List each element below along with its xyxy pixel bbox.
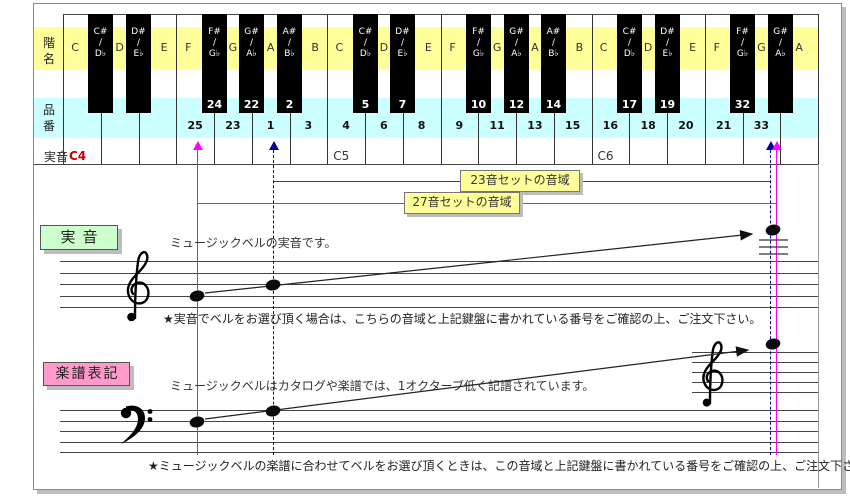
black-key-label: / — [239, 38, 264, 49]
black-key-label: / — [730, 38, 755, 49]
key-guide-line — [770, 150, 771, 455]
notation-bass-staff-line — [60, 442, 818, 443]
black-key: F#/G♭10 — [466, 14, 491, 113]
notation-bass-staff-line — [60, 452, 818, 453]
range-label-27-set: 27音セットの音域 — [404, 192, 520, 214]
black-key: D#/E♭7 — [390, 14, 415, 113]
black-key-number: 19 — [655, 99, 680, 111]
black-key-label: / — [353, 38, 378, 49]
black-key-label: / — [88, 38, 113, 49]
black-key-label: G# — [768, 27, 793, 38]
white-key-number: 11 — [480, 119, 514, 132]
black-key-label: A# — [541, 27, 566, 38]
right-edge-line — [818, 164, 819, 488]
black-key-label: G♭ — [466, 49, 491, 60]
black-key-label: B♭ — [277, 49, 302, 60]
black-key-label: / — [504, 38, 529, 49]
black-key-label: D♭ — [88, 49, 113, 60]
white-key-number: 8 — [405, 119, 439, 132]
black-key-label: / — [126, 38, 151, 49]
white-key-separator — [818, 14, 819, 164]
white-key-name: F — [179, 41, 197, 54]
key-guide-arrow-icon — [193, 141, 203, 150]
white-key-number: 13 — [518, 119, 552, 132]
white-key-name: B — [306, 41, 324, 54]
octave-sound-label: C6 — [598, 149, 628, 163]
notation-treble-staff-line — [692, 372, 818, 373]
keyboard-bottom-line — [34, 164, 818, 165]
black-key: A#/B♭14 — [541, 14, 566, 113]
notation-bass-staff-line — [60, 421, 818, 422]
row-label-product-number: 品番 — [41, 102, 57, 134]
black-key-label: D# — [655, 27, 680, 38]
white-key-separator — [441, 14, 442, 164]
row-label-scale-name: 階名 — [41, 35, 57, 67]
black-key-label: A♭ — [504, 49, 529, 60]
black-key-number: 32 — [730, 99, 755, 111]
white-key-separator — [705, 14, 706, 164]
black-key: A#/B♭2 — [277, 14, 302, 113]
actual-staff-line — [60, 307, 818, 308]
black-key-number: 10 — [466, 99, 491, 111]
black-key: G#/A♭22 — [239, 14, 264, 113]
black-key-label: / — [541, 38, 566, 49]
white-key-separator — [63, 14, 64, 164]
black-key-label: / — [768, 38, 793, 49]
black-key: G#/A♭ — [768, 14, 793, 113]
white-key-number: 4 — [329, 119, 363, 132]
black-key-label: D♭ — [617, 49, 642, 60]
actual-staff-line — [60, 261, 818, 262]
white-key-separator — [176, 14, 177, 164]
black-key-label: G# — [504, 27, 529, 38]
black-key-label: B♭ — [541, 49, 566, 60]
black-key-label: D♭ — [353, 49, 378, 60]
white-key-number: 16 — [594, 119, 628, 132]
actual-sound-description: ミュージックベルの実音です。 — [170, 234, 337, 251]
white-key-number: 15 — [556, 119, 590, 132]
white-key-number: 1 — [254, 119, 288, 132]
black-key-label: E♭ — [655, 49, 680, 60]
actual-sound-section-box: 実音 — [40, 225, 118, 250]
white-key-number: 21 — [707, 119, 741, 132]
black-key-label: G# — [239, 27, 264, 38]
black-key-label: E♭ — [126, 49, 151, 60]
black-key-label: C# — [88, 27, 113, 38]
notation-description: ミュージックベルはカタログや楽譜では、1オクターブ低く記譜されています。 — [170, 377, 594, 394]
white-key-name: C — [330, 41, 348, 54]
keyboard-top-line — [63, 14, 818, 15]
actual-sound-order-note: ★実音でベルをお選び頂く場合は、こちらの音域と上記鍵盤に書かれている番号をご確認… — [163, 310, 761, 327]
white-key-name: E — [155, 41, 173, 54]
black-key-label: E♭ — [390, 49, 415, 60]
black-key-label: / — [655, 38, 680, 49]
white-key-name: E — [419, 41, 437, 54]
notation-bass-staff-line — [60, 431, 818, 432]
octave-sound-label: C4 — [69, 149, 99, 163]
black-key-number: 24 — [202, 99, 227, 111]
black-key: D#/E♭ — [126, 14, 151, 113]
black-key-label: / — [617, 38, 642, 49]
black-key: F#/G♭24 — [202, 14, 227, 113]
actual-staff-line — [60, 284, 818, 285]
black-key-label: A♭ — [768, 49, 793, 60]
white-key-separator — [327, 14, 328, 164]
black-key-label: / — [202, 38, 227, 49]
black-key-label: G♭ — [730, 49, 755, 60]
white-key-name: B — [570, 41, 588, 54]
white-key-number: 20 — [669, 119, 703, 132]
black-key-label: / — [390, 38, 415, 49]
black-key: C#/D♭5 — [353, 14, 378, 113]
black-key-label: C# — [353, 27, 378, 38]
octave-sound-label: C5 — [333, 149, 363, 163]
black-key: G#/A♭12 — [504, 14, 529, 113]
white-key-name: C — [66, 41, 84, 54]
white-key-number: 18 — [631, 119, 665, 132]
diagram-frame — [33, 3, 842, 490]
white-key-number: 6 — [367, 119, 401, 132]
notation-treble-staff-line — [692, 392, 818, 393]
black-key-label: F# — [202, 27, 227, 38]
white-key-number: 9 — [443, 119, 477, 132]
black-key-label: A# — [277, 27, 302, 38]
key-guide-arrow-icon — [772, 141, 782, 150]
black-key-label: A♭ — [239, 49, 264, 60]
actual-staff-line — [60, 273, 818, 274]
notation-treble-staff-line — [692, 382, 818, 383]
notation-section-box: 楽譜表記 — [43, 362, 130, 386]
black-key-label: G♭ — [202, 49, 227, 60]
white-key-name: F — [444, 41, 462, 54]
black-key-label: D# — [126, 27, 151, 38]
white-key-number: 23 — [216, 119, 250, 132]
black-key-label: D# — [390, 27, 415, 38]
white-key-number: 3 — [292, 119, 326, 132]
black-key-number: 22 — [239, 99, 264, 111]
black-key: C#/D♭ — [88, 14, 113, 113]
notation-treble-staff-line — [692, 352, 818, 353]
actual-staff-line — [60, 296, 818, 297]
white-key-number: 25 — [178, 119, 212, 132]
black-key-label: C# — [617, 27, 642, 38]
black-key-number: 12 — [504, 99, 529, 111]
white-key-separator — [592, 14, 593, 164]
black-key-number: 2 — [277, 99, 302, 111]
black-key: C#/D♭17 — [617, 14, 642, 113]
product-number-band — [34, 98, 818, 138]
key-guide-line — [197, 150, 198, 455]
notation-bass-staff-line — [60, 410, 818, 411]
range-label-23-set: 23音セットの音域 — [460, 170, 580, 192]
black-key: F#/G♭32 — [730, 14, 755, 113]
music-bell-range-diagram: { "colors": { "band_scale": "#ffff99", "… — [0, 0, 850, 500]
black-key-number: 5 — [353, 99, 378, 111]
key-guide-line — [776, 150, 777, 455]
notation-treble-staff-line — [692, 362, 818, 363]
black-key-label: F# — [730, 27, 755, 38]
notation-order-note: ★ミュージックベルの楽譜に合わせてベルをお選び頂くときは、この音域と上記鍵盤に書… — [148, 457, 850, 474]
key-guide-line — [273, 150, 274, 455]
key-guide-arrow-icon — [269, 141, 279, 150]
black-key-label: / — [277, 38, 302, 49]
black-key: D#/E♭19 — [655, 14, 680, 113]
white-key-number: 33 — [745, 119, 779, 132]
black-key-number: 14 — [541, 99, 566, 111]
black-key-number: 7 — [390, 99, 415, 111]
white-key-name: E — [684, 41, 702, 54]
white-key-name: C — [595, 41, 613, 54]
white-key-name: F — [708, 41, 726, 54]
black-key-label: / — [466, 38, 491, 49]
black-key-number: 17 — [617, 99, 642, 111]
black-key-label: F# — [466, 27, 491, 38]
